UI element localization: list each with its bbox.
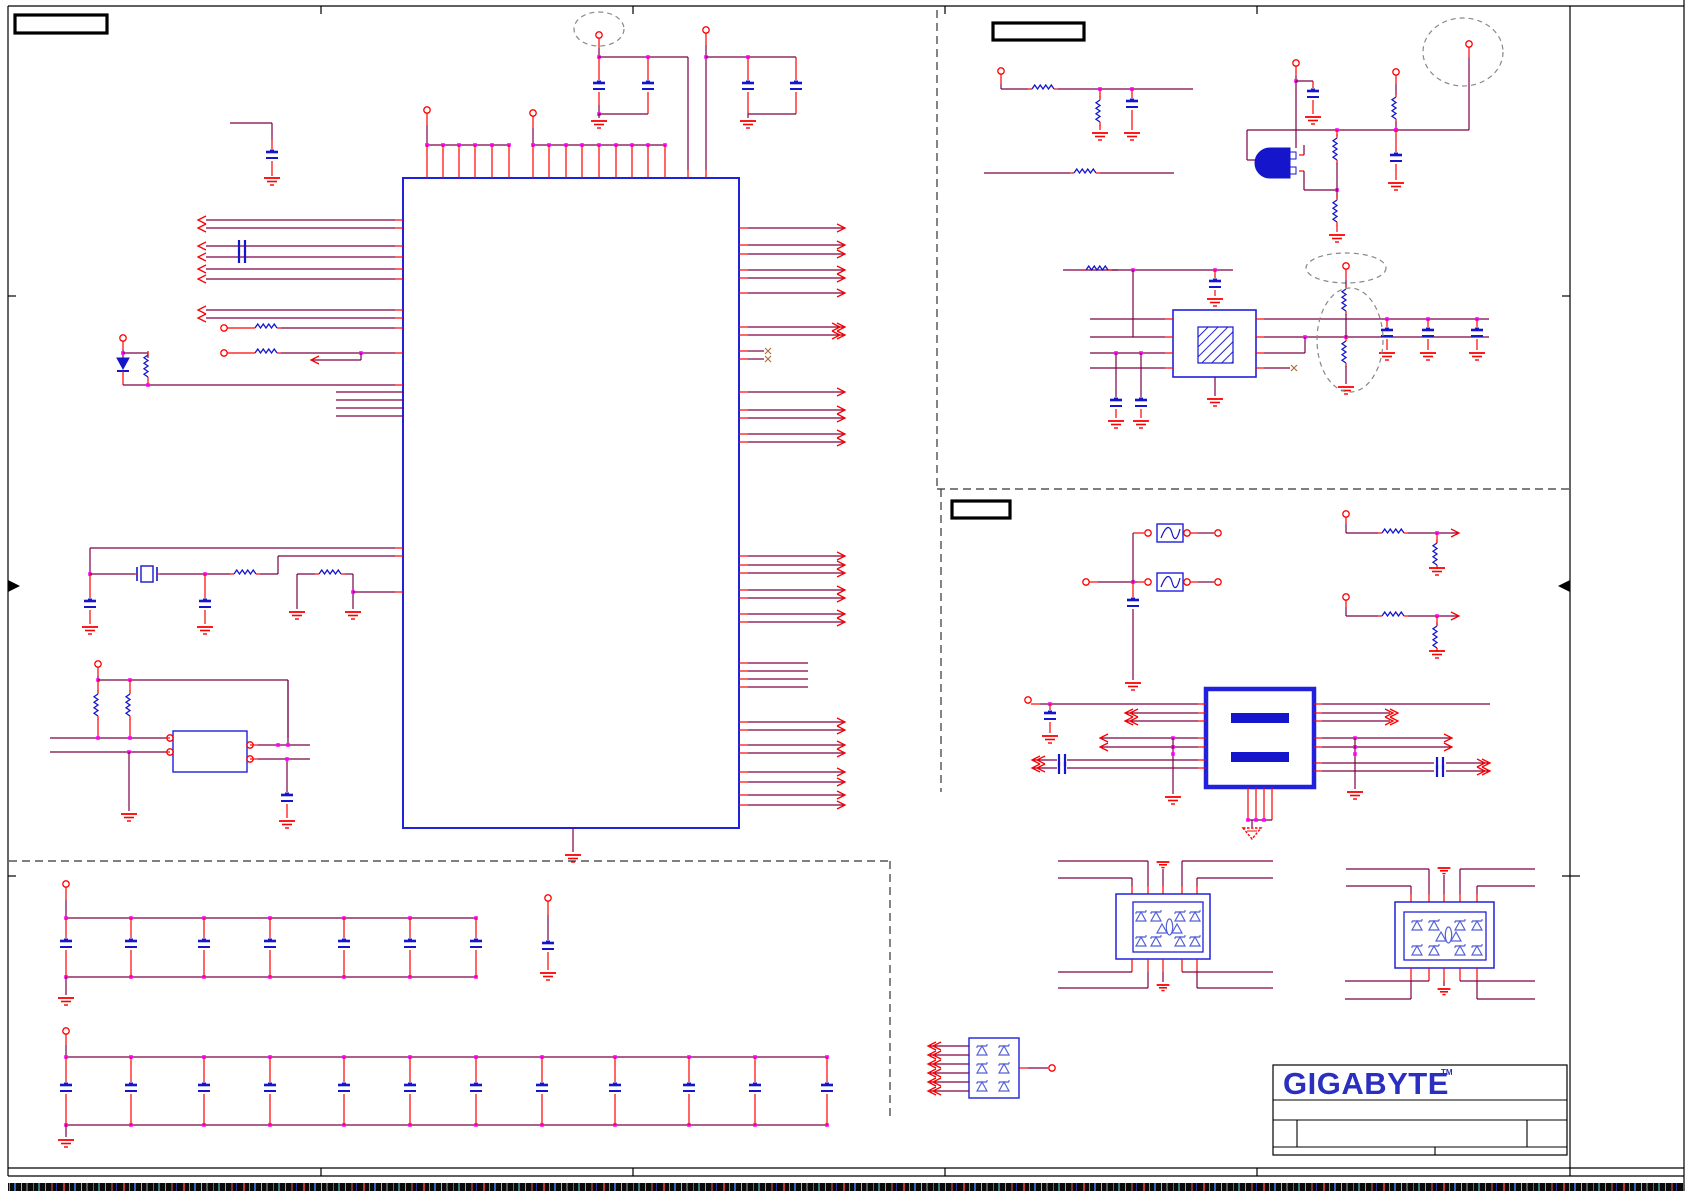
sheet-frame — [8, 0, 1684, 1191]
circuit-graphics — [15, 12, 1535, 1147]
trademark-label: TM — [1441, 1068, 1453, 1077]
gigabyte-logo: GIGABYTE — [1283, 1066, 1449, 1101]
section-dividers — [9, 10, 1570, 1118]
schematic-canvas: GIGABYTE TM — [0, 0, 1685, 1191]
title-block: GIGABYTE TM — [1273, 1065, 1567, 1155]
schematic-sheet: GIGABYTE TM — [0, 0, 1685, 1191]
